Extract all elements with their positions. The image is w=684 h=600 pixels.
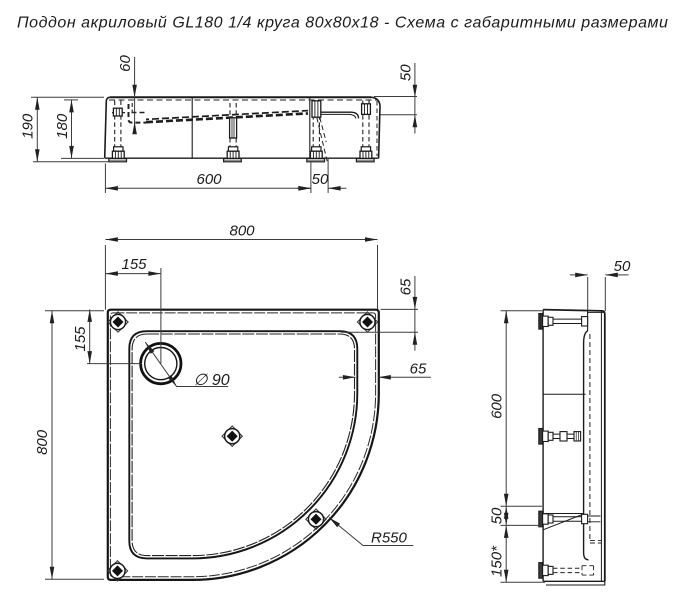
svg-text:50: 50 [397,64,414,81]
svg-text:65: 65 [410,361,427,378]
svg-text:65: 65 [397,278,414,295]
svg-text:60: 60 [117,55,134,72]
svg-text:50: 50 [489,507,506,524]
svg-text:800: 800 [34,429,51,455]
svg-text:150*: 150* [489,545,506,577]
svg-text:50: 50 [312,171,329,188]
svg-text:155: 155 [72,326,89,352]
svg-text:600: 600 [489,393,506,419]
svg-text:R550: R550 [371,529,408,546]
svg-text:190: 190 [20,113,37,139]
svg-text:155: 155 [121,256,147,273]
svg-text:600: 600 [196,171,222,188]
svg-text:∅ 90: ∅ 90 [194,372,230,389]
svg-text:Поддон акриловый GL180 1/4 кр: Поддон акриловый GL180 1/4 круга 80х80х1… [17,15,669,32]
svg-text:50: 50 [614,258,631,275]
svg-text:800: 800 [229,223,255,240]
svg-text:180: 180 [54,113,71,139]
